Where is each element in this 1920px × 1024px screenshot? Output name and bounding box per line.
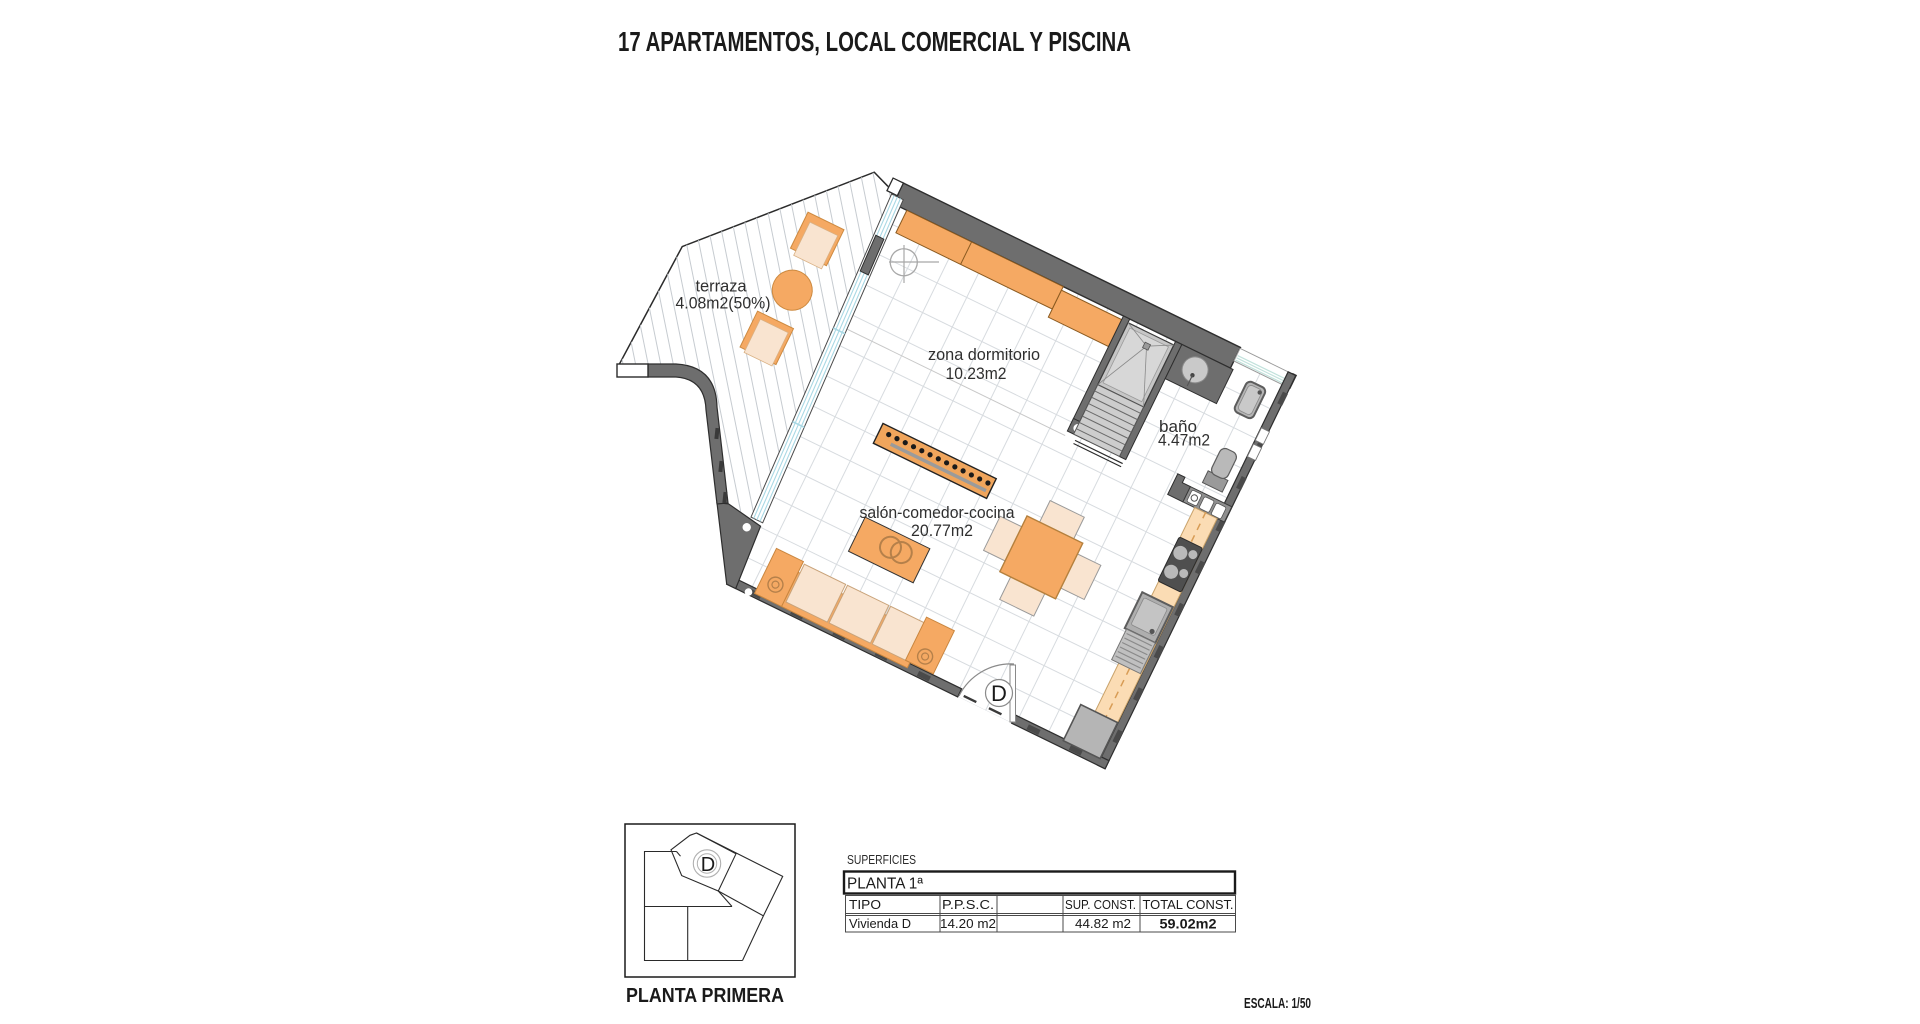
svg-text:4.47m2: 4.47m2: [1158, 432, 1210, 450]
svg-text:P.P.S.C.: P.P.S.C.: [942, 897, 994, 912]
svg-text:D: D: [701, 854, 715, 876]
svg-text:Vivienda D: Vivienda D: [849, 916, 911, 931]
svg-text:59.02m2: 59.02m2: [1160, 916, 1217, 932]
svg-text:PLANTA PRIMERA: PLANTA PRIMERA: [626, 985, 784, 1007]
svg-text:SUP. CONST.: SUP. CONST.: [1065, 897, 1136, 912]
svg-text:10.23m2: 10.23m2: [946, 365, 1007, 383]
svg-text:17 APARTAMENTOS, LOCAL COMERCI: 17 APARTAMENTOS, LOCAL COMERCIAL Y PISCI…: [618, 26, 1131, 57]
svg-text:salón-comedor-cocina: salón-comedor-cocina: [860, 504, 1016, 522]
svg-text:TOTAL CONST.: TOTAL CONST.: [1143, 897, 1234, 912]
svg-text:PLANTA 1ª: PLANTA 1ª: [847, 876, 923, 893]
svg-text:44.82 m2: 44.82 m2: [1075, 916, 1131, 931]
svg-text:20.77m2: 20.77m2: [911, 522, 973, 540]
svg-text:TIPO: TIPO: [849, 897, 881, 912]
svg-text:SUPERFICIES: SUPERFICIES: [847, 853, 916, 867]
svg-text:4.08m2(50%): 4.08m2(50%): [676, 295, 771, 313]
svg-text:ESCALA: 1/50: ESCALA: 1/50: [1244, 995, 1311, 1012]
svg-text:14.20 m2: 14.20 m2: [940, 916, 996, 931]
svg-text:zona dormitorio: zona dormitorio: [928, 346, 1040, 364]
svg-text:D: D: [991, 681, 1007, 706]
svg-text:terraza: terraza: [696, 278, 748, 296]
